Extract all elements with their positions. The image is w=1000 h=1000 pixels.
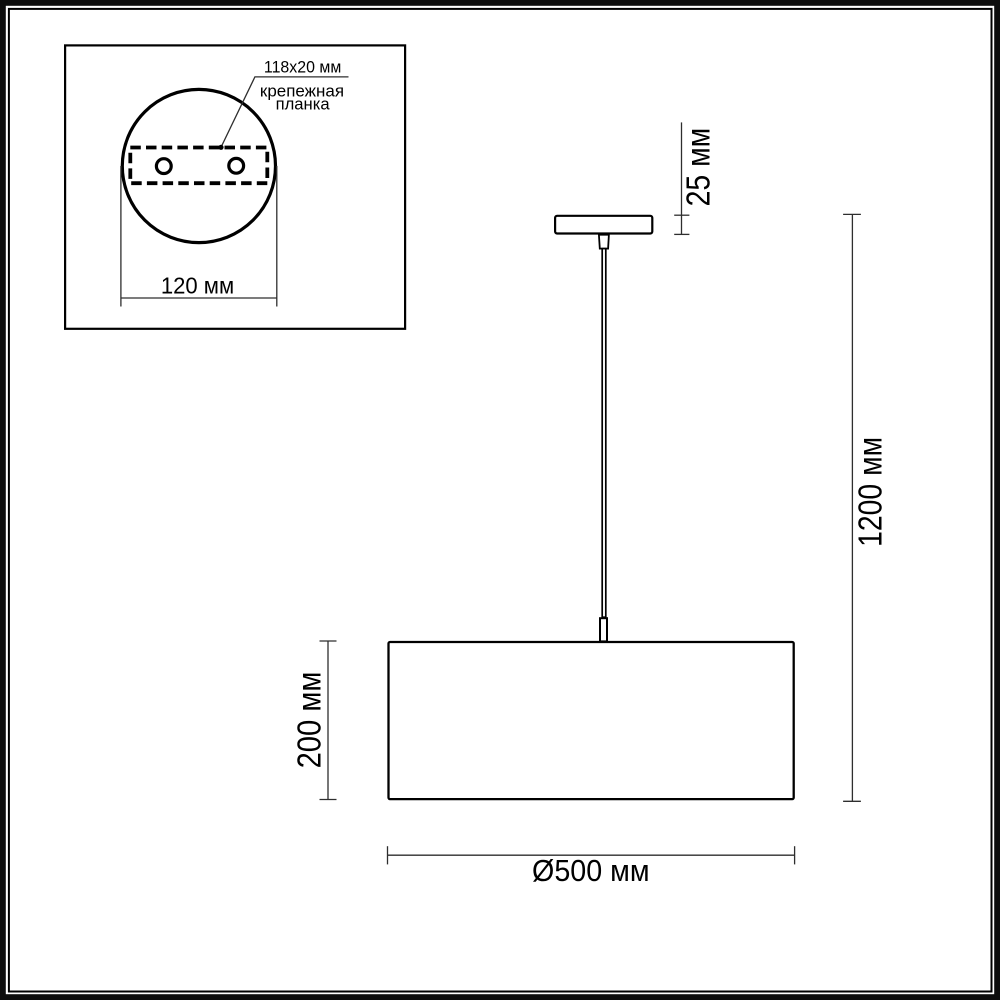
svg-text:200 мм: 200 мм xyxy=(291,672,328,769)
svg-text:1200 мм: 1200 мм xyxy=(851,437,888,547)
svg-text:планка: планка xyxy=(276,95,331,113)
svg-text:Ø500 мм: Ø500 мм xyxy=(532,853,650,888)
svg-text:120 мм: 120 мм xyxy=(161,272,234,298)
svg-text:118x20 мм: 118x20 мм xyxy=(264,58,341,76)
svg-text:25 мм: 25 мм xyxy=(680,128,717,207)
